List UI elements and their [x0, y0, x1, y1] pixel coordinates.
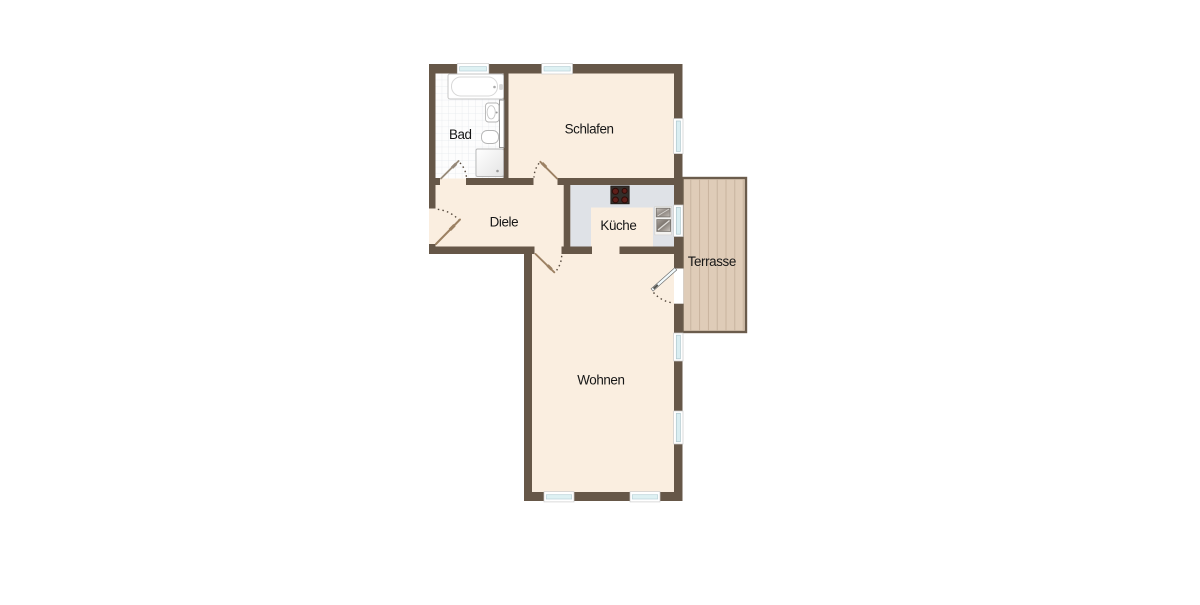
- svg-text:Bad: Bad: [449, 127, 472, 142]
- svg-text:Terrasse: Terrasse: [688, 254, 736, 269]
- svg-text:Küche: Küche: [600, 218, 636, 233]
- svg-text:Diele: Diele: [490, 214, 519, 229]
- svg-text:Wohnen: Wohnen: [577, 372, 624, 387]
- svg-text:Schlafen: Schlafen: [565, 122, 614, 137]
